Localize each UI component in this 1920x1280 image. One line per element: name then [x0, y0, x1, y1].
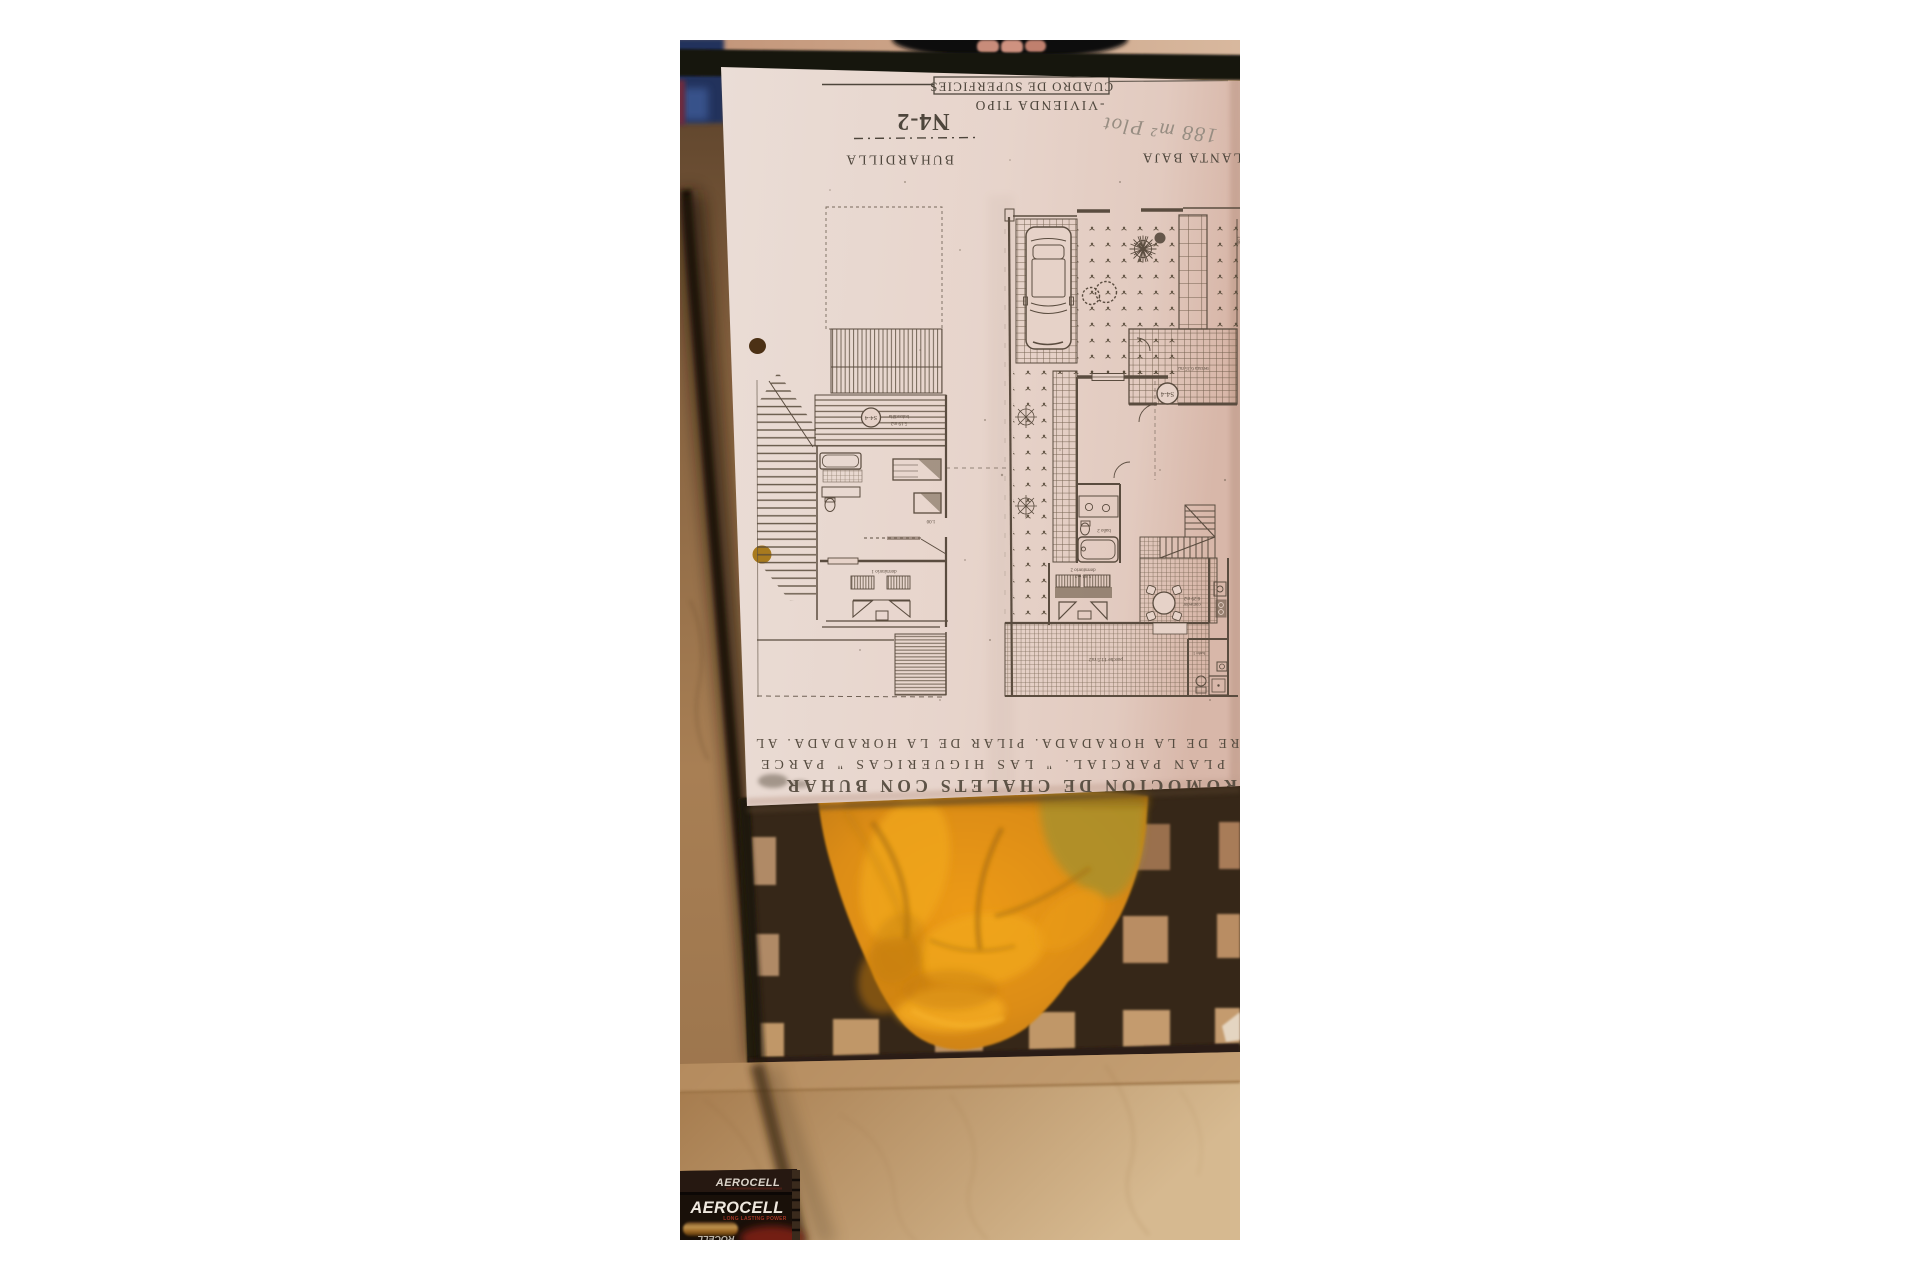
svg-text:RRE DE LA HORADADA. PILAR DE L: RRE DE LA HORADADA. PILAR DE LA HORADADA… — [752, 736, 1252, 751]
svg-text:1.00: 1.00 — [926, 518, 935, 523]
svg-text:-VIVIENDA TIPO: -VIVIENDA TIPO — [974, 98, 1105, 113]
svg-text:BUHARDILLA: BUHARDILLA — [844, 152, 954, 167]
svg-text:terraza 6.35 m2: terraza 6.35 m2 — [1177, 365, 1209, 370]
svg-text:AEROCELL: AEROCELL — [715, 1177, 781, 1189]
svg-text:comedor: comedor — [1183, 601, 1201, 606]
svg-text:buhardilla: buhardilla — [888, 413, 909, 418]
svg-text:dormitorio 2: dormitorio 2 — [1070, 567, 1096, 572]
svg-text:PLAN PARCIAL. " LAS HIGUERICAS: PLAN PARCIAL. " LAS HIGUERICAS " PARCE — [756, 756, 1225, 771]
svg-text:5.19 m2: 5.19 m2 — [890, 420, 907, 425]
svg-text:baño 1: baño 1 — [1193, 651, 1205, 656]
svg-text:PLANTA BAJA: PLANTA BAJA — [1141, 150, 1252, 165]
svg-text:N4-2: N4-2 — [896, 108, 949, 134]
svg-text:LONG LASTING POWER: LONG LASTING POWER — [723, 1216, 787, 1222]
svg-text:CUADRO DE SUPERFICIES: CUADRO DE SUPERFICIES — [929, 80, 1113, 95]
svg-text:porche 11.5 m2: porche 11.5 m2 — [1089, 656, 1123, 662]
svg-text:S4-4: S4-4 — [864, 414, 877, 421]
svg-text:S4-4: S4-4 — [1160, 390, 1174, 398]
svg-text:6.29 m2: 6.29 m2 — [1183, 595, 1200, 600]
svg-text:3.86: 3.86 — [1235, 236, 1240, 245]
svg-text:AEROCELL: AEROCELL — [689, 1199, 783, 1217]
svg-text:dormitorio 1: dormitorio 1 — [871, 568, 897, 573]
svg-text:baño 2: baño 2 — [1097, 527, 1111, 532]
